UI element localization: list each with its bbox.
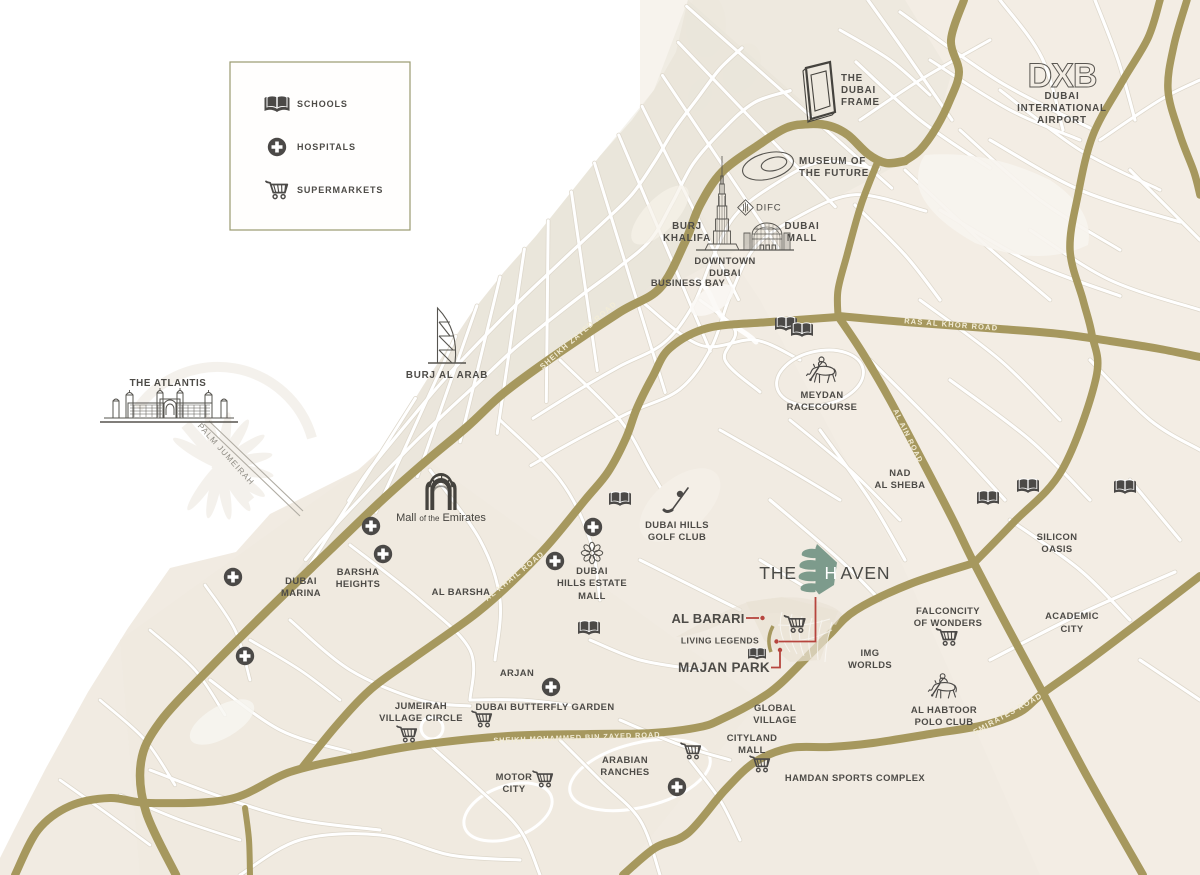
svg-text:DUBAI: DUBAI — [576, 565, 608, 576]
svg-text:INTERNATIONAL: INTERNATIONAL — [1017, 103, 1107, 114]
svg-text:ARABIAN: ARABIAN — [602, 754, 648, 765]
svg-text:DUBAI: DUBAI — [784, 221, 819, 232]
svg-text:BURJ: BURJ — [672, 221, 702, 232]
svg-text:H: H — [825, 563, 839, 583]
svg-text:DOWNTOWN: DOWNTOWN — [694, 255, 755, 266]
svg-text:THE ATLANTIS: THE ATLANTIS — [130, 378, 207, 389]
svg-text:DIFC: DIFC — [756, 203, 781, 214]
svg-text:VILLAGE: VILLAGE — [753, 714, 796, 725]
svg-text:FRAME: FRAME — [841, 97, 880, 108]
svg-text:RACECOURSE: RACECOURSE — [787, 401, 858, 412]
svg-text:MAJAN PARK: MAJAN PARK — [678, 660, 770, 675]
svg-text:AIRPORT: AIRPORT — [1037, 115, 1087, 126]
svg-text:HOSPITALS: HOSPITALS — [297, 142, 356, 152]
svg-text:CITYLAND: CITYLAND — [727, 732, 778, 743]
svg-text:CITY: CITY — [503, 783, 526, 794]
svg-text:DUBAI: DUBAI — [285, 575, 317, 586]
svg-text:RANCHES: RANCHES — [600, 766, 649, 777]
svg-text:THE FUTURE: THE FUTURE — [799, 168, 869, 179]
svg-text:MARINA: MARINA — [281, 587, 321, 598]
svg-text:AL BARSHA: AL BARSHA — [432, 586, 491, 597]
svg-text:AL SHEBA: AL SHEBA — [875, 479, 926, 490]
svg-text:DUBAI: DUBAI — [1044, 91, 1079, 102]
svg-text:SUPERMARKETS: SUPERMARKETS — [297, 185, 383, 195]
svg-text:WORLDS: WORLDS — [848, 659, 892, 670]
svg-text:THE: THE — [841, 73, 863, 84]
svg-text:OF WONDERS: OF WONDERS — [914, 617, 983, 628]
svg-text:HEIGHTS: HEIGHTS — [336, 578, 380, 589]
svg-text:BURJ AL ARAB: BURJ AL ARAB — [406, 370, 488, 381]
svg-text:CITY: CITY — [1061, 623, 1084, 634]
svg-text:DUBAI BUTTERFLY GARDEN: DUBAI BUTTERFLY GARDEN — [475, 701, 614, 712]
svg-text:DXB: DXB — [1028, 57, 1097, 95]
svg-text:HAMDAN SPORTS COMPLEX: HAMDAN SPORTS COMPLEX — [785, 772, 926, 783]
svg-text:MEYDAN: MEYDAN — [800, 389, 843, 400]
svg-text:THE: THE — [759, 563, 797, 583]
svg-text:DUBAI HILLS: DUBAI HILLS — [645, 519, 709, 530]
svg-text:NAD: NAD — [889, 467, 911, 478]
svg-text:MALL: MALL — [738, 744, 766, 755]
svg-text:BARSHA: BARSHA — [337, 566, 380, 577]
svg-text:MOTOR: MOTOR — [496, 771, 533, 782]
svg-text:AVEN: AVEN — [841, 563, 891, 583]
svg-text:IMG: IMG — [861, 647, 880, 658]
svg-text:DUBAI: DUBAI — [841, 85, 876, 96]
svg-text:BUSINESS BAY: BUSINESS BAY — [651, 277, 726, 288]
svg-text:HILLS ESTATE: HILLS ESTATE — [557, 577, 627, 588]
svg-text:GOLF CLUB: GOLF CLUB — [648, 531, 706, 542]
svg-text:GLOBAL: GLOBAL — [754, 702, 796, 713]
svg-text:MALL: MALL — [787, 233, 817, 244]
svg-text:Mall of the Emirates: Mall of the Emirates — [396, 512, 486, 524]
svg-text:MUSEUM OF: MUSEUM OF — [799, 156, 866, 167]
svg-text:AL BARARI: AL BARARI — [671, 611, 744, 626]
svg-text:KHALIFA: KHALIFA — [663, 233, 711, 244]
svg-text:JUMEIRAH: JUMEIRAH — [395, 700, 447, 711]
svg-text:MALL: MALL — [578, 590, 606, 601]
svg-text:POLO CLUB: POLO CLUB — [915, 716, 974, 727]
svg-text:SILICON: SILICON — [1037, 531, 1078, 542]
svg-text:OASIS: OASIS — [1041, 543, 1072, 554]
svg-text:SCHOOLS: SCHOOLS — [297, 99, 348, 109]
svg-text:ACADEMIC: ACADEMIC — [1045, 610, 1099, 621]
svg-text:FALCONCITY: FALCONCITY — [916, 605, 980, 616]
svg-text:LIVING LEGENDS: LIVING LEGENDS — [681, 636, 759, 646]
svg-text:AL HABTOOR: AL HABTOOR — [911, 704, 977, 715]
svg-text:ARJAN: ARJAN — [500, 667, 534, 678]
svg-text:VILLAGE CIRCLE: VILLAGE CIRCLE — [379, 712, 463, 723]
